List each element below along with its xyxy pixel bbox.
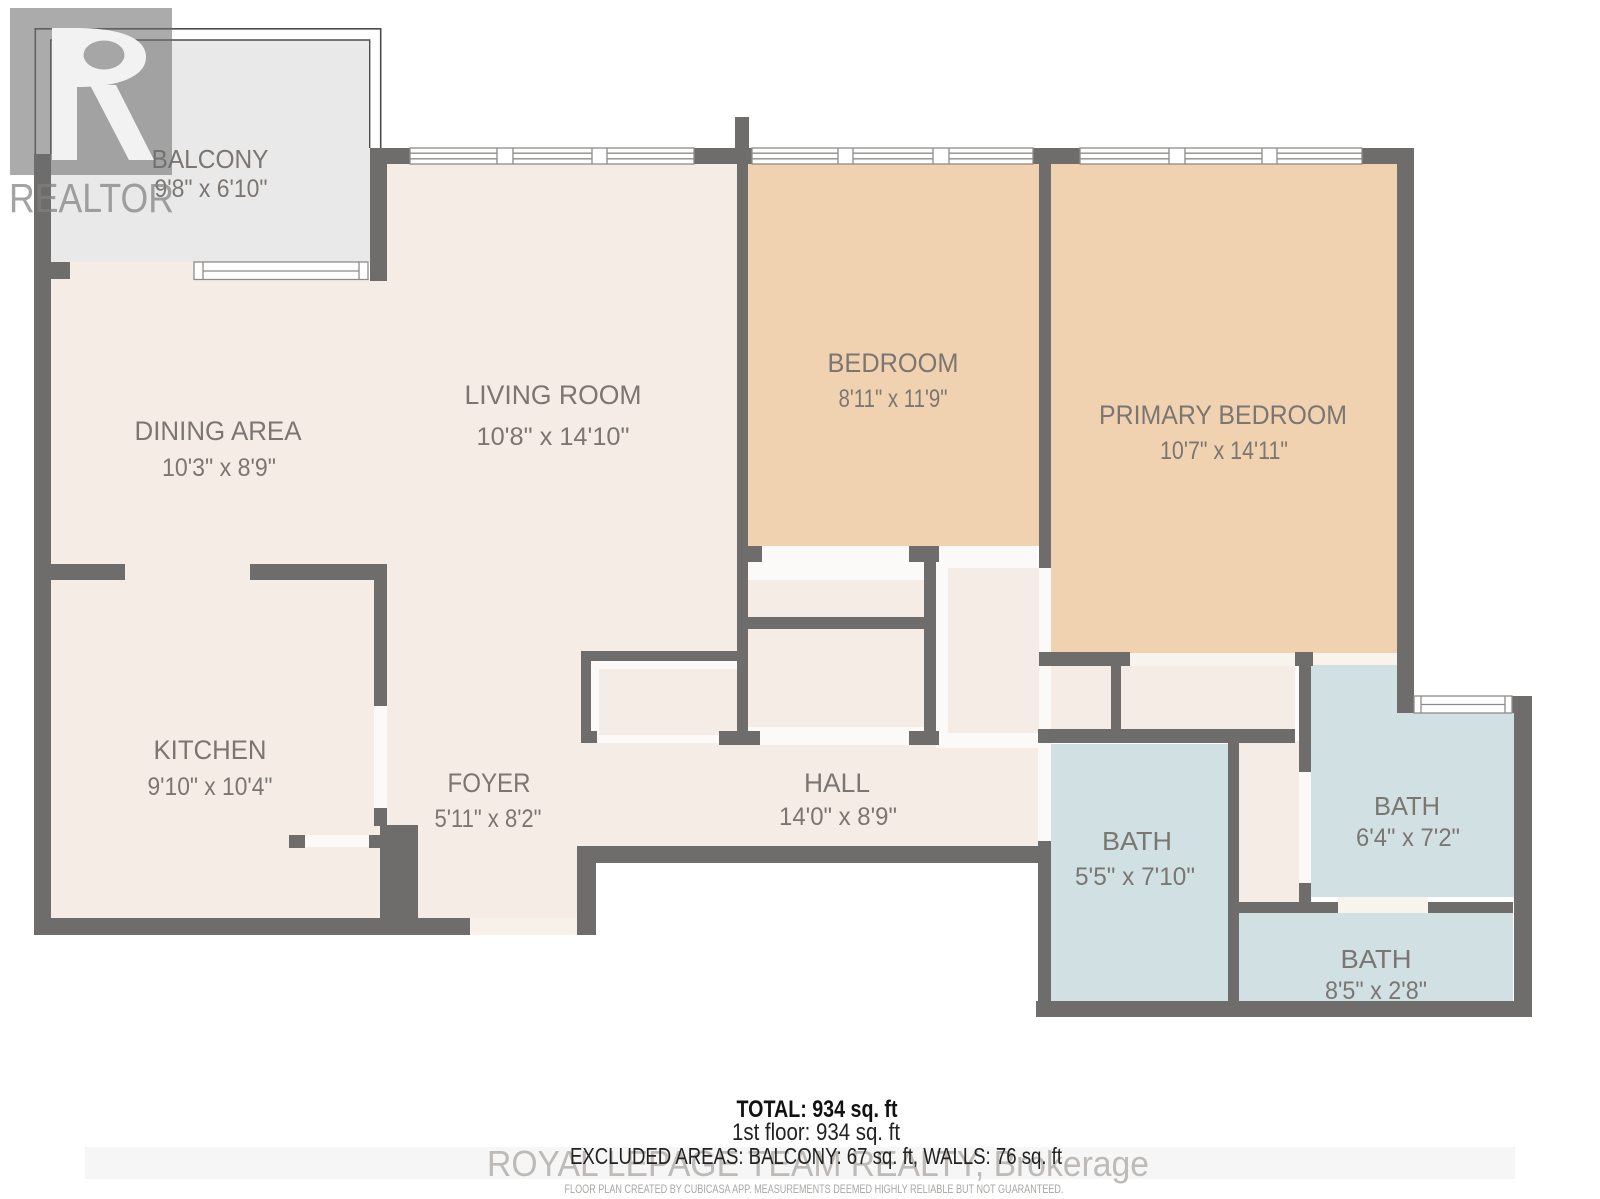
svg-text:6'4" x 7'2": 6'4" x 7'2" [1356,824,1460,852]
svg-text:10'8" x 14'10": 10'8" x 14'10" [477,423,630,451]
svg-text:10'7" x 14'11": 10'7" x 14'11" [1160,437,1288,465]
svg-text:LIVING ROOM: LIVING ROOM [465,380,642,410]
svg-text:BATH: BATH [1102,826,1172,856]
svg-text:9'10" x 10'4": 9'10" x 10'4" [148,773,273,801]
svg-text:EXCLUDED AREAS: BALCONY: 67 sq: EXCLUDED AREAS: BALCONY: 67 sq. ft, WALL… [570,1143,1062,1169]
svg-text:PRIMARY BEDROOM: PRIMARY BEDROOM [1099,400,1347,430]
svg-text:DINING AREA: DINING AREA [135,416,302,446]
svg-text:BATH: BATH [1374,791,1440,821]
svg-text:REALTOR: REALTOR [9,175,174,221]
svg-text:8'11" x 11'9": 8'11" x 11'9" [839,385,948,413]
svg-text:FOYER: FOYER [448,768,531,798]
svg-text:14'0" x 8'9": 14'0" x 8'9" [779,803,897,831]
svg-text:FLOOR PLAN CREATED BY CUBICASA: FLOOR PLAN CREATED BY CUBICASA APP. MEAS… [565,1182,1064,1196]
svg-text:5'11" x 8'2": 5'11" x 8'2" [435,805,542,833]
svg-text:KITCHEN: KITCHEN [154,735,267,765]
svg-text:BEDROOM: BEDROOM [828,348,959,378]
svg-text:10'3" x 8'9": 10'3" x 8'9" [162,454,276,482]
svg-text:1st floor: 934 sq. ft: 1st floor: 934 sq. ft [732,1119,900,1146]
svg-text:HALL: HALL [804,768,870,798]
svg-text:BATH: BATH [1341,944,1412,974]
svg-text:5'5" x 7'10": 5'5" x 7'10" [1075,863,1195,891]
svg-text:8'5" x 2'8": 8'5" x 2'8" [1325,977,1427,1005]
